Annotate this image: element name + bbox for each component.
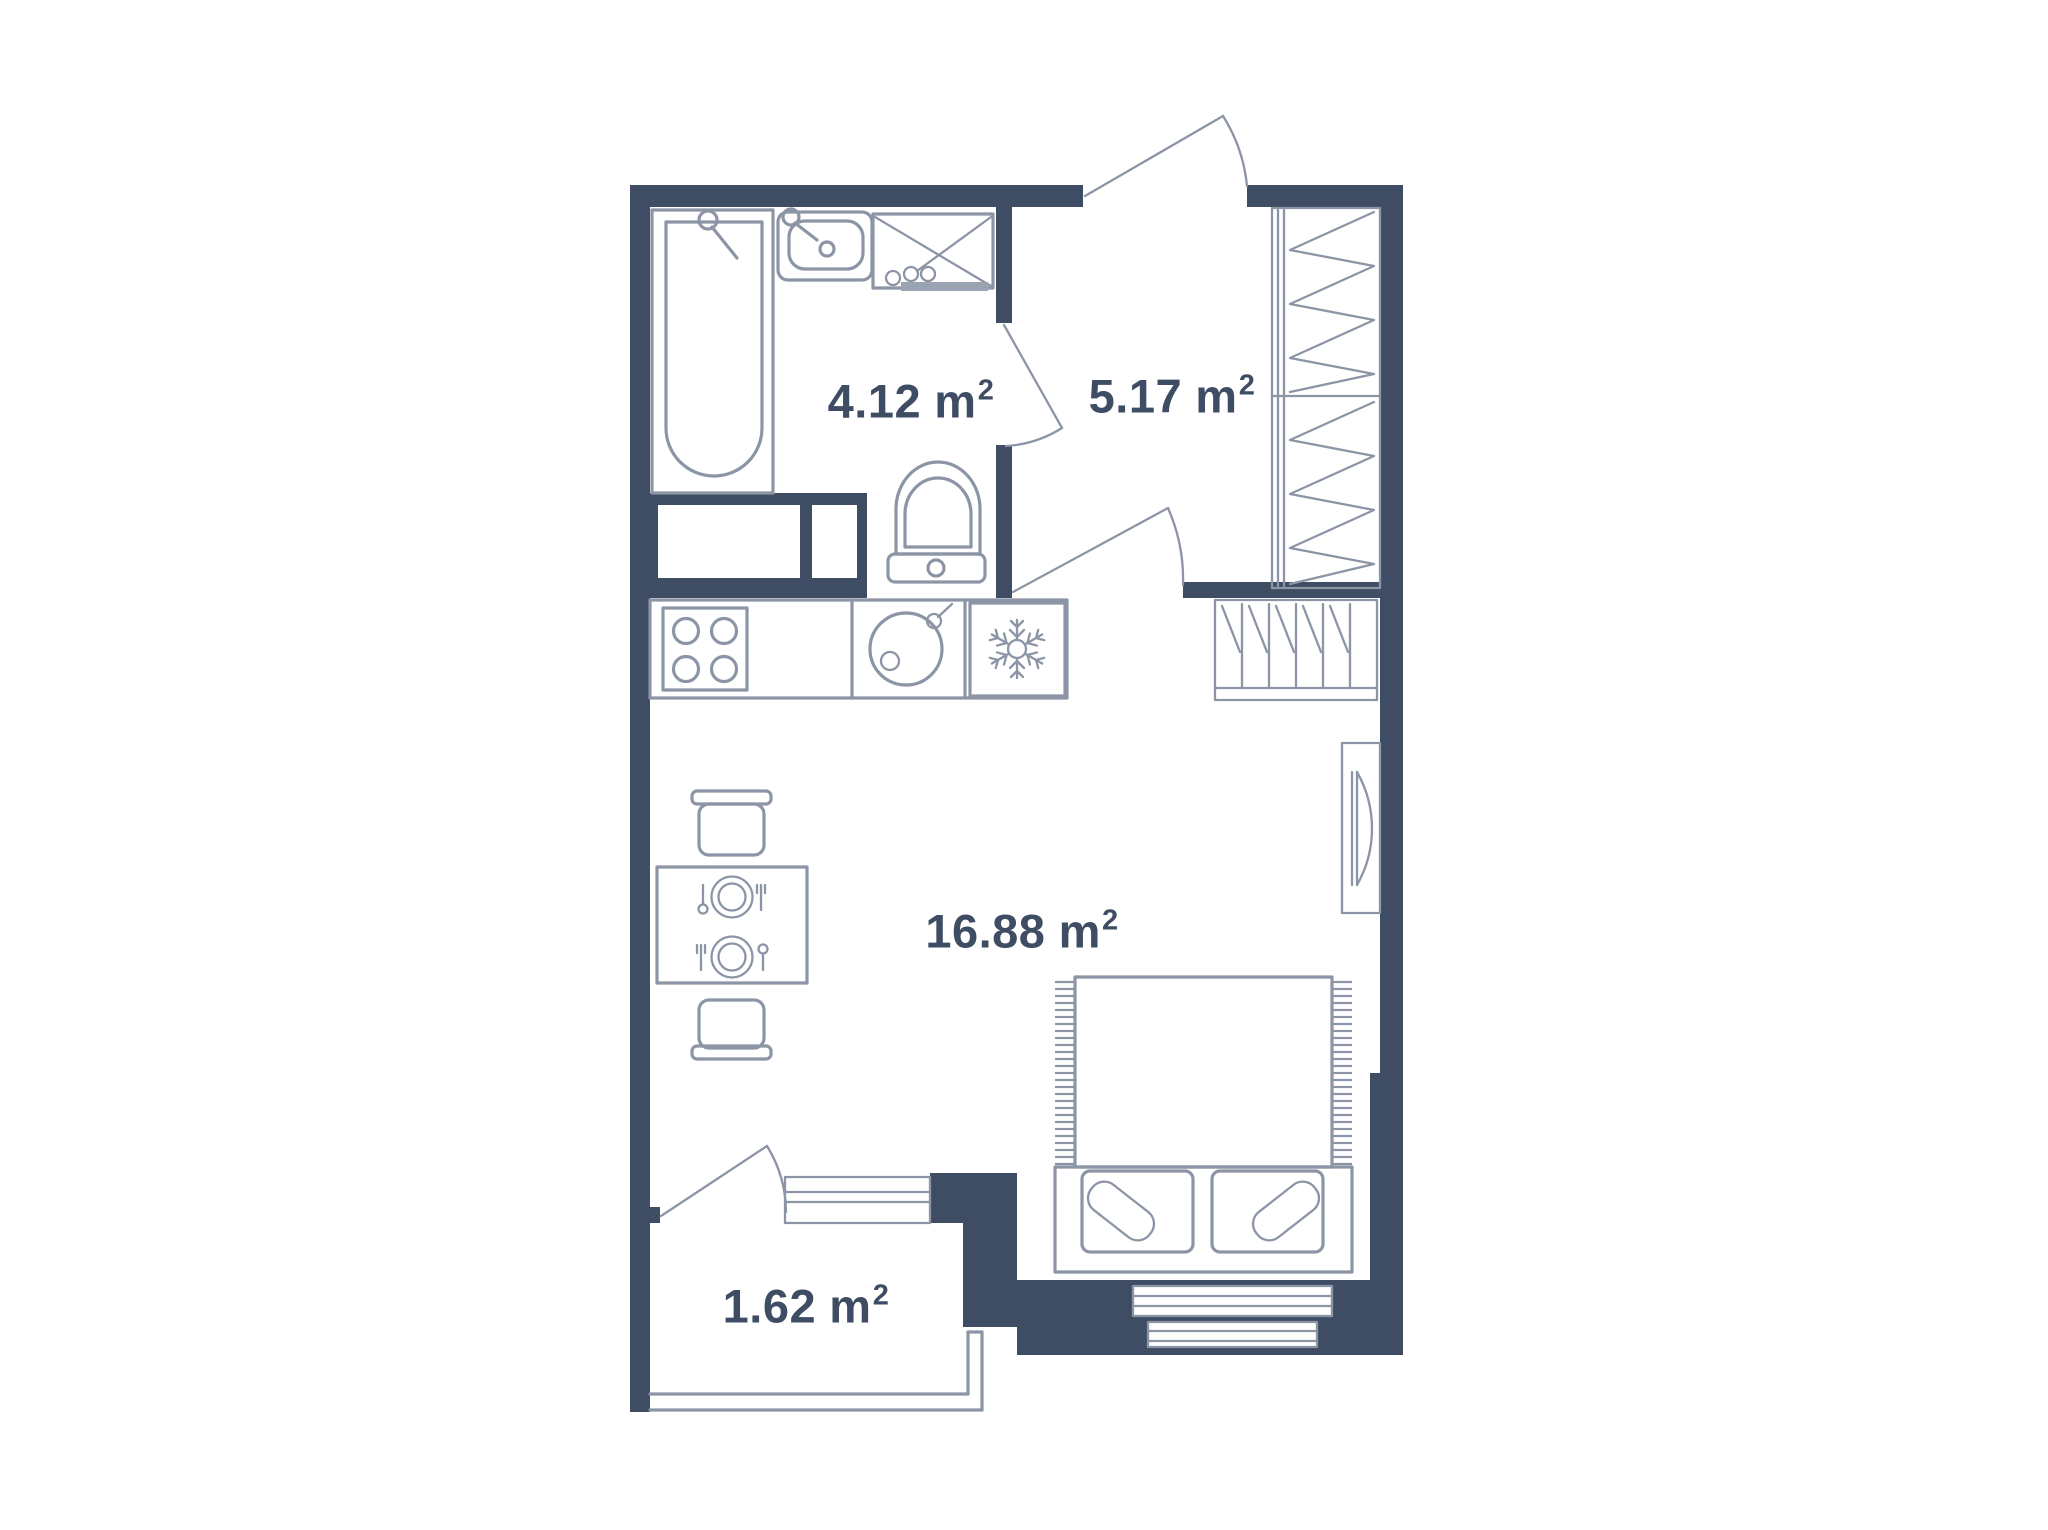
french-window-icon	[785, 1177, 930, 1223]
window-icon	[1133, 1286, 1332, 1347]
dining-table-icon	[657, 867, 807, 983]
kitchen-counter	[650, 600, 1067, 698]
bathroom-door-icon	[1004, 325, 1062, 446]
kitchen-sink-icon	[870, 604, 952, 685]
area-value: 4.12	[828, 375, 921, 428]
interior-door-icon	[1013, 508, 1183, 592]
room-area-label-living-room: 16.88m2	[925, 904, 1118, 959]
bathtub-icon	[652, 210, 773, 493]
duct-niche	[658, 505, 800, 578]
room-area-label-hallway: 5.17m2	[1089, 369, 1256, 424]
area-exponent: 2	[873, 1279, 890, 1311]
area-unit: m	[829, 1280, 871, 1333]
double-bed-icon	[1055, 977, 1352, 1272]
area-value: 5.17	[1089, 370, 1182, 423]
area-value: 16.88	[925, 905, 1045, 958]
duct-niche	[812, 505, 857, 578]
area-unit: m	[934, 375, 976, 428]
bathroom-sink-icon	[778, 209, 872, 280]
floor-plan	[0, 0, 2048, 1530]
washing-machine-icon	[873, 214, 993, 291]
wardrobe-icon	[1272, 208, 1380, 588]
chair-icon	[692, 791, 771, 855]
area-unit: m	[1195, 370, 1237, 423]
shoe-rack-icon	[1215, 600, 1377, 700]
toilet-icon	[888, 462, 985, 582]
area-exponent: 2	[978, 374, 995, 406]
floor-plan-page: 4.12m2 5.17m2 16.88m2 1.62m2	[0, 0, 2048, 1530]
radiator-icon	[1342, 743, 1380, 913]
balcony-railing	[650, 1332, 982, 1410]
room-area-label-balcony: 1.62m2	[723, 1279, 890, 1334]
walls	[630, 185, 1403, 1412]
snowflake-icon	[988, 620, 1045, 678]
fridge-snowflake-icon	[970, 603, 1065, 696]
entrance-door-icon	[1085, 116, 1247, 196]
stove-icon	[663, 608, 747, 690]
area-value: 1.62	[723, 1280, 816, 1333]
room-area-label-bathroom: 4.12m2	[828, 374, 995, 429]
area-exponent: 2	[1239, 369, 1256, 401]
balcony-door-icon	[661, 1146, 786, 1216]
area-exponent: 2	[1102, 904, 1119, 936]
area-unit: m	[1059, 905, 1101, 958]
chair-icon	[692, 1000, 771, 1059]
